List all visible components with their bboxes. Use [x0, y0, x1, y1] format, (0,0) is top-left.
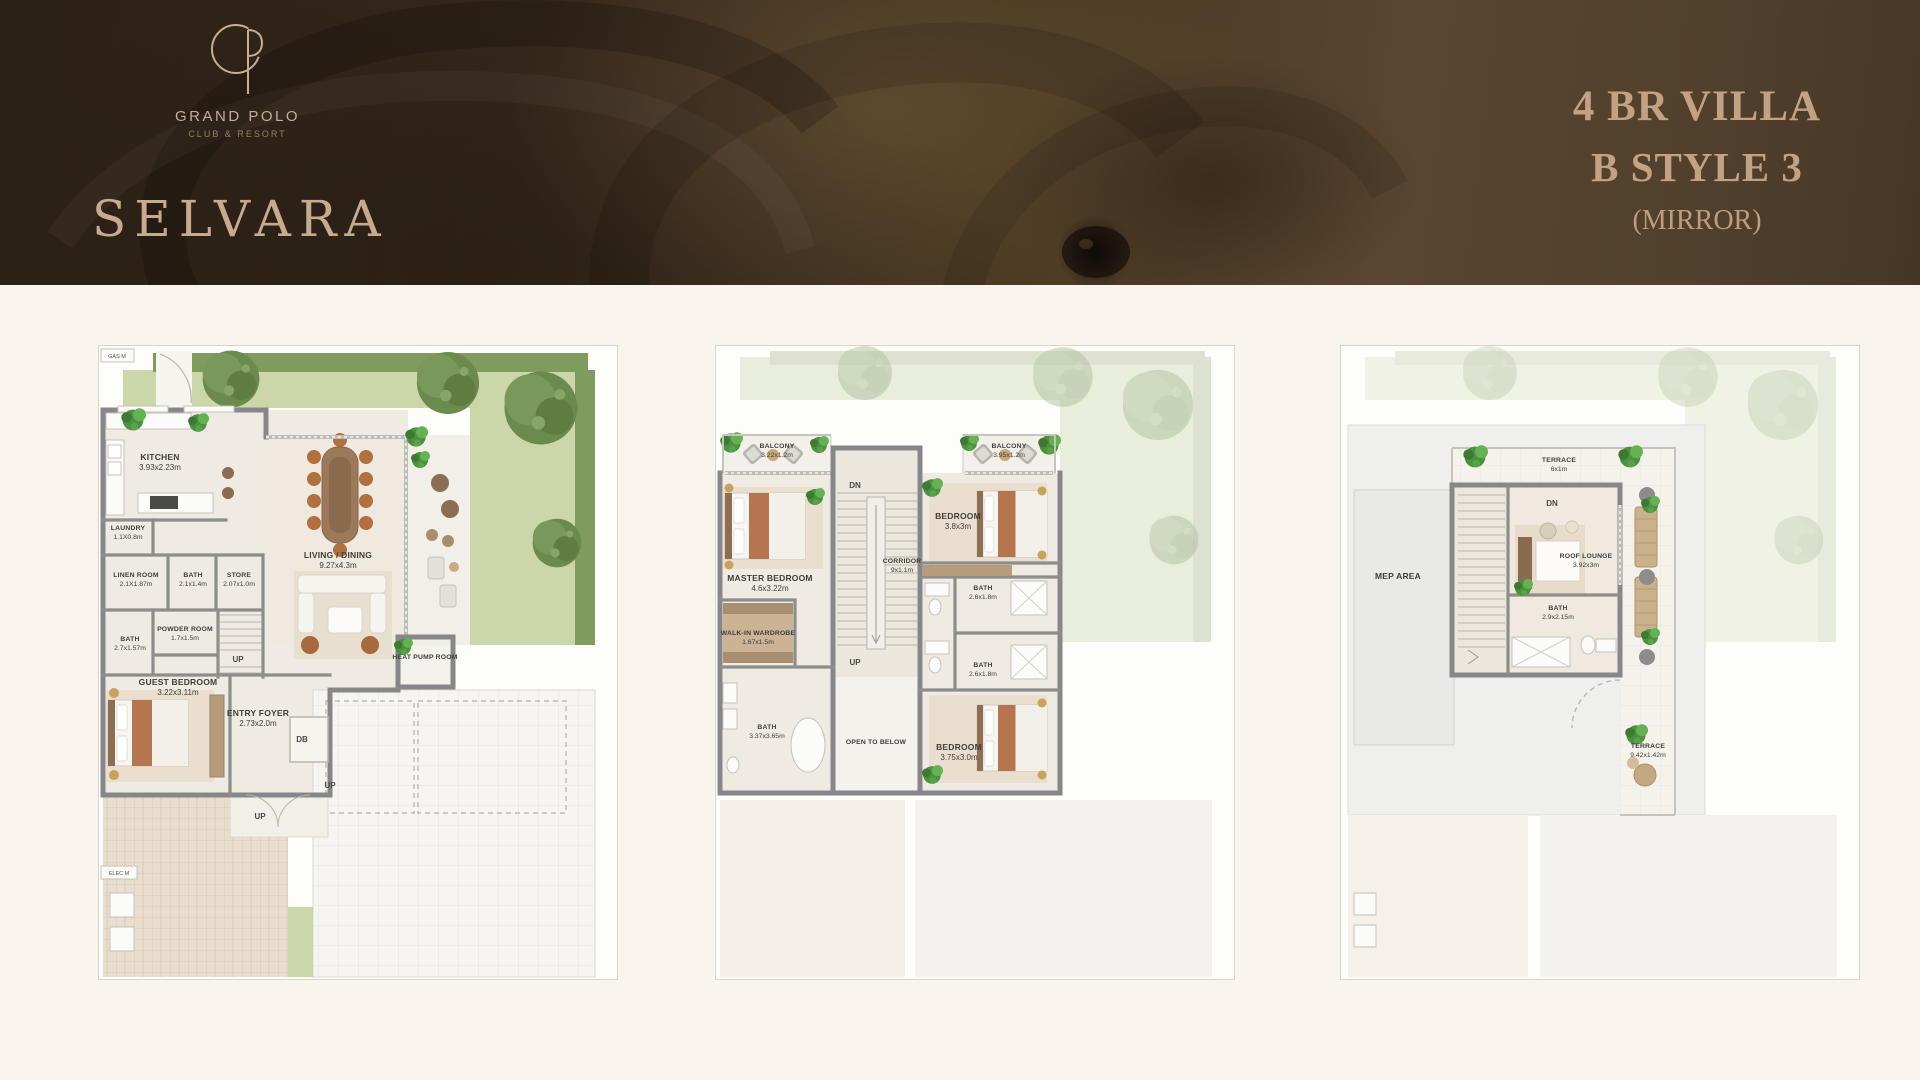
room-label: TERRACE — [1631, 743, 1666, 750]
unit-title-line3: (MIRROR) — [1547, 205, 1847, 237]
room-label: BATH — [1548, 605, 1567, 612]
room-dims: 3.75x3.0m — [940, 753, 978, 762]
room-dims: 3.22x1.2m — [761, 452, 793, 459]
unit-title-line1: 4 BR VILLA — [1547, 82, 1847, 131]
first-floor-plan: BALCONY 3.22x1.2m BALCONY 3.95x1.2m MAST… — [715, 345, 1235, 980]
room-label: ROOF LOUNGE — [1560, 553, 1613, 560]
tree-icon — [203, 351, 260, 408]
room-dims: 3.22x3.11m — [157, 688, 199, 697]
brochure-page: GRAND POLO CLUB & RESORT SELVARA 4 BR VI… — [0, 0, 1920, 1080]
gas-meter-label: GAS M — [108, 354, 126, 360]
room-label: OPEN TO BELOW — [846, 739, 907, 746]
guest-bed — [106, 688, 224, 782]
room-label: BATH — [973, 585, 992, 592]
bedroom-bottom-bed — [929, 695, 1047, 783]
room-label: CORRIDOR — [883, 558, 922, 565]
room-label: MEP AREA — [1375, 571, 1421, 581]
room-dims: 9x1.1m — [891, 567, 914, 574]
room-dims: 4.6x3.22m — [751, 584, 789, 593]
brand-block: GRAND POLO CLUB & RESORT — [130, 22, 345, 139]
dn-annotation: DN — [1546, 499, 1558, 508]
room-dims: 9.27x4.3m — [319, 561, 357, 570]
room-label: WALK-IN WARDROBE — [721, 630, 796, 637]
room-dims: 6x1m — [1551, 466, 1568, 473]
room-label: BATH — [973, 662, 992, 669]
room-label: GUEST BEDROOM — [139, 677, 218, 687]
up-annotation: UP — [849, 658, 861, 667]
room-dims: 3.92x3m — [1573, 562, 1599, 569]
room-dims: 3.93x2.23m — [139, 463, 181, 472]
db-annotation: DB — [296, 735, 308, 744]
room-label: LAUNDRY — [111, 525, 146, 532]
grand-polo-monogram-icon — [210, 22, 266, 98]
room-dims: 2.6x1.8m — [969, 594, 997, 601]
room-label: BATH — [120, 636, 139, 643]
header-banner: GRAND POLO CLUB & RESORT SELVARA 4 BR VI… — [0, 0, 1920, 285]
room-label: BALCONY — [991, 443, 1026, 450]
stool — [222, 467, 234, 479]
room-label: HEAT PUMP ROOM — [392, 654, 457, 661]
brand-subtitle: CLUB & RESORT — [130, 129, 345, 139]
room-label: KITCHEN — [140, 452, 179, 462]
room-dims: 2.7x1.57m — [114, 645, 146, 652]
room-dims: 2.6x1.8m — [969, 671, 997, 678]
unit-title-line2: B STYLE 3 — [1547, 143, 1847, 191]
living-set — [294, 571, 392, 659]
room-label: BALCONY — [759, 443, 794, 450]
room-dims: 1.67x1.5m — [742, 639, 774, 646]
driveway — [313, 690, 595, 977]
ground-floor-plan: GAS M ELEC M KITCHEN 3.93x2.23m LAUNDRY … — [98, 345, 618, 980]
room-dims: 3.95x1.2m — [993, 452, 1025, 459]
room-label: BEDROOM — [936, 742, 982, 752]
elec-meter-label: ELEC M — [109, 871, 130, 877]
tree-icon — [505, 372, 578, 445]
brand-name: GRAND POLO — [130, 108, 345, 125]
stool — [222, 487, 234, 499]
room-label: LINEN ROOM — [113, 572, 159, 579]
meter-box — [1354, 893, 1376, 915]
room-label: ENTRY FOYER — [227, 708, 289, 718]
room-dims: 1.1X0.8m — [113, 534, 142, 541]
meter-box — [110, 927, 134, 951]
up-annotation: UP — [324, 781, 336, 790]
room-label: STORE — [227, 572, 252, 579]
dn-annotation: DN — [849, 481, 861, 490]
room-label: MASTER BEDROOM — [727, 573, 812, 583]
room-label: BEDROOM — [935, 511, 981, 521]
up-annotation: UP — [232, 655, 244, 664]
up-annotation: UP — [254, 812, 266, 821]
room-label: BATH — [183, 572, 202, 579]
room-dims: 9.42x1.42m — [1630, 752, 1666, 759]
room-dims: 2.73x2.0m — [239, 719, 277, 728]
project-name: SELVARA — [92, 190, 389, 248]
room-dims: 2.1X1.87m — [120, 581, 153, 588]
room-dims: 2.1x1.4m — [179, 581, 207, 588]
tree-icon — [533, 519, 582, 568]
meter-box — [1354, 925, 1376, 947]
room-dims: 3.8x3m — [945, 522, 972, 531]
room-dims: 2.9x2.15m — [1542, 614, 1574, 621]
ghost-driveway — [915, 800, 1212, 977]
room-dims: 1.7x1.5m — [171, 635, 199, 642]
room-label: LIVING / DINING — [304, 550, 372, 560]
second-floor-plan: TERRACE 6x1m MEP AREA ROOF LOUNGE 3.92x3… — [1340, 345, 1860, 980]
unit-title: 4 BR VILLA B STYLE 3 (MIRROR) — [1547, 82, 1847, 237]
room-dims: 2.07x1.0m — [223, 581, 255, 588]
room-label: TERRACE — [1542, 457, 1577, 464]
tree-icon — [417, 352, 479, 414]
room-label: BATH — [757, 724, 776, 731]
room-label: POWDER ROOM — [157, 626, 213, 633]
room-dims: 3.37x3.65m — [749, 733, 785, 740]
ghost-path — [720, 800, 905, 977]
meter-box — [110, 893, 134, 917]
